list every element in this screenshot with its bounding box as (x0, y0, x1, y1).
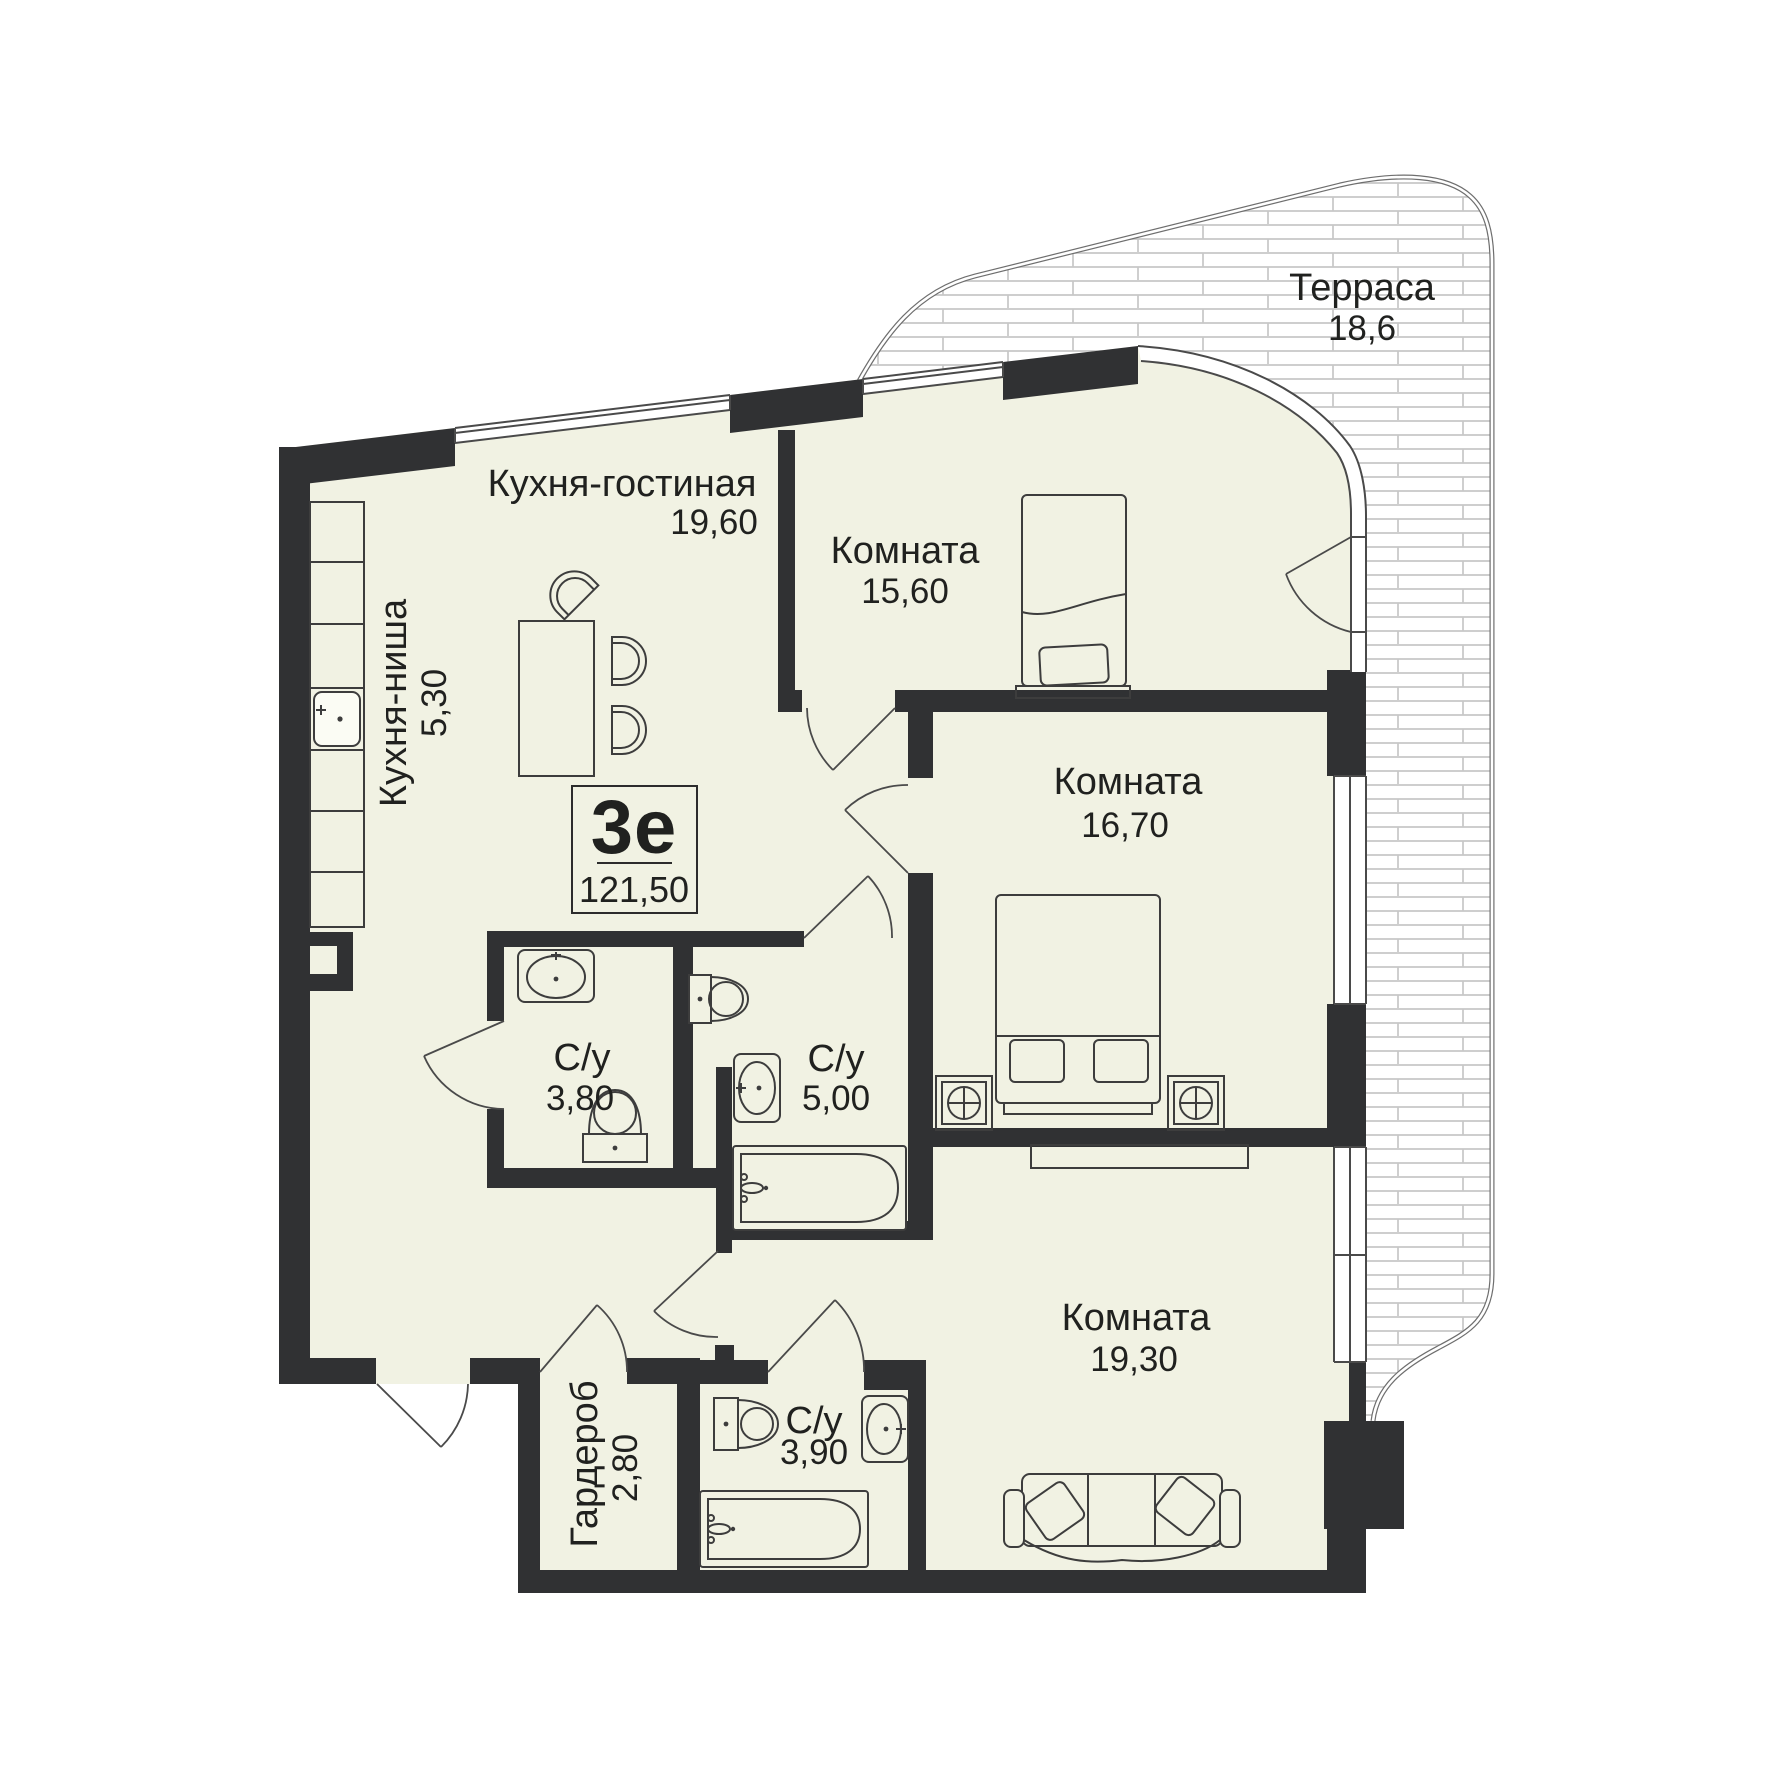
svg-text:Терраса: Терраса (1289, 267, 1436, 309)
svg-text:Комната: Комната (831, 530, 981, 572)
svg-text:15,60: 15,60 (861, 572, 949, 611)
svg-text:19,30: 19,30 (1090, 1340, 1178, 1379)
svg-text:18,6: 18,6 (1328, 309, 1396, 348)
svg-text:3,90: 3,90 (780, 1433, 848, 1472)
svg-text:5,00: 5,00 (802, 1079, 870, 1118)
svg-text:19,60: 19,60 (670, 503, 758, 542)
svg-text:2,80: 2,80 (606, 1434, 645, 1502)
svg-text:Кухня-ниша: Кухня-ниша (373, 598, 415, 807)
svg-text:Кухня-гостиная: Кухня-гостиная (488, 463, 757, 505)
svg-text:С/у: С/у (554, 1037, 611, 1079)
svg-text:5,30: 5,30 (415, 669, 454, 737)
svg-text:Комната: Комната (1062, 1297, 1212, 1339)
svg-text:3,80: 3,80 (546, 1079, 614, 1118)
svg-text:С/у: С/у (808, 1038, 865, 1080)
svg-text:16,70: 16,70 (1081, 806, 1169, 845)
svg-text:3е: 3е (591, 785, 678, 870)
svg-text:121,50: 121,50 (579, 869, 689, 910)
svg-text:Гардероб: Гардероб (564, 1380, 606, 1547)
svg-text:Комната: Комната (1054, 761, 1204, 803)
